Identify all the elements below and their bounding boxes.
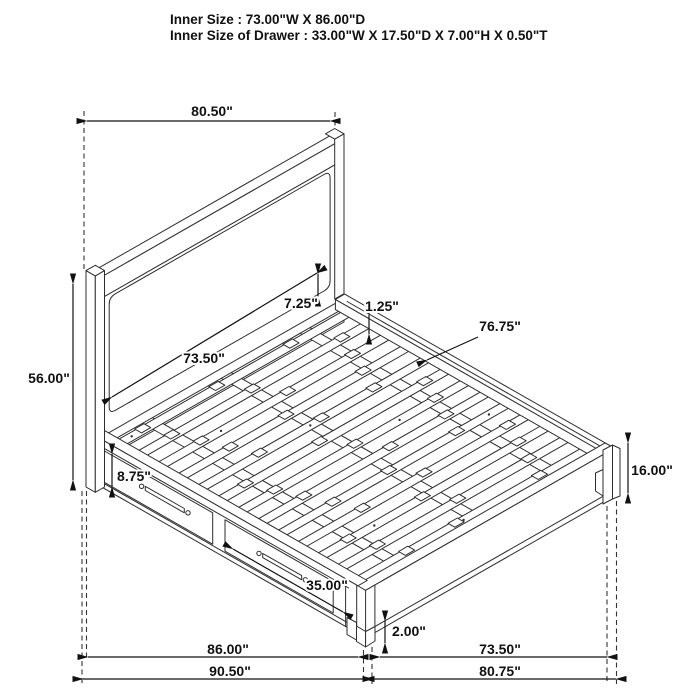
dim-label-drawer-front-height: 8.75" bbox=[117, 468, 151, 484]
dim-label-overall-width: 80.50" bbox=[191, 103, 233, 119]
dim-label-side-rail-length: 86.00" bbox=[207, 641, 249, 657]
dim-label-footboard-outer-width: 80.75" bbox=[479, 663, 521, 679]
dimension-overall-width: 80.50" bbox=[87, 103, 330, 121]
dimension-footboard-height: 16.00" bbox=[628, 443, 673, 493]
isometric-bed-drawing: 80.50"56.00"7.25"1.25"76.75"73.50"8.75"3… bbox=[0, 0, 700, 700]
dimension-overall-depth: 90.50" bbox=[83, 663, 364, 679]
dimension-side-rail-length: 86.00" bbox=[88, 641, 358, 657]
dim-label-footboard-height: 16.00" bbox=[631, 462, 673, 478]
dim-label-slat-inset: 1.25" bbox=[365, 298, 399, 314]
dimension-footboard-inner-width: 73.50" bbox=[380, 641, 607, 657]
dim-label-slat-length: 76.75" bbox=[479, 318, 521, 334]
dim-label-headboard-height: 56.00" bbox=[28, 370, 70, 386]
dim-label-floor-clearance: 2.00" bbox=[392, 623, 426, 639]
bed-dimension-diagram: Inner Size : 73.00"W X 86.00"D Inner Siz… bbox=[0, 0, 700, 700]
dim-label-headboard-inner-width: 73.50" bbox=[183, 350, 225, 366]
dimension-footboard-outer-width: 80.75" bbox=[373, 663, 616, 679]
right-side-rail bbox=[335, 294, 614, 464]
dimension-slat-length: 76.75" bbox=[427, 318, 521, 360]
dimension-headboard-height: 56.00" bbox=[28, 284, 73, 480]
dim-label-headboard-post-width: 7.25" bbox=[284, 295, 318, 311]
dim-label-overall-depth: 90.50" bbox=[209, 663, 251, 679]
dimension-floor-clearance: 2.00" bbox=[385, 621, 426, 643]
dim-label-drawer-front-width: 35.00" bbox=[306, 577, 348, 593]
dim-label-footboard-inner-width: 73.50" bbox=[479, 641, 521, 657]
